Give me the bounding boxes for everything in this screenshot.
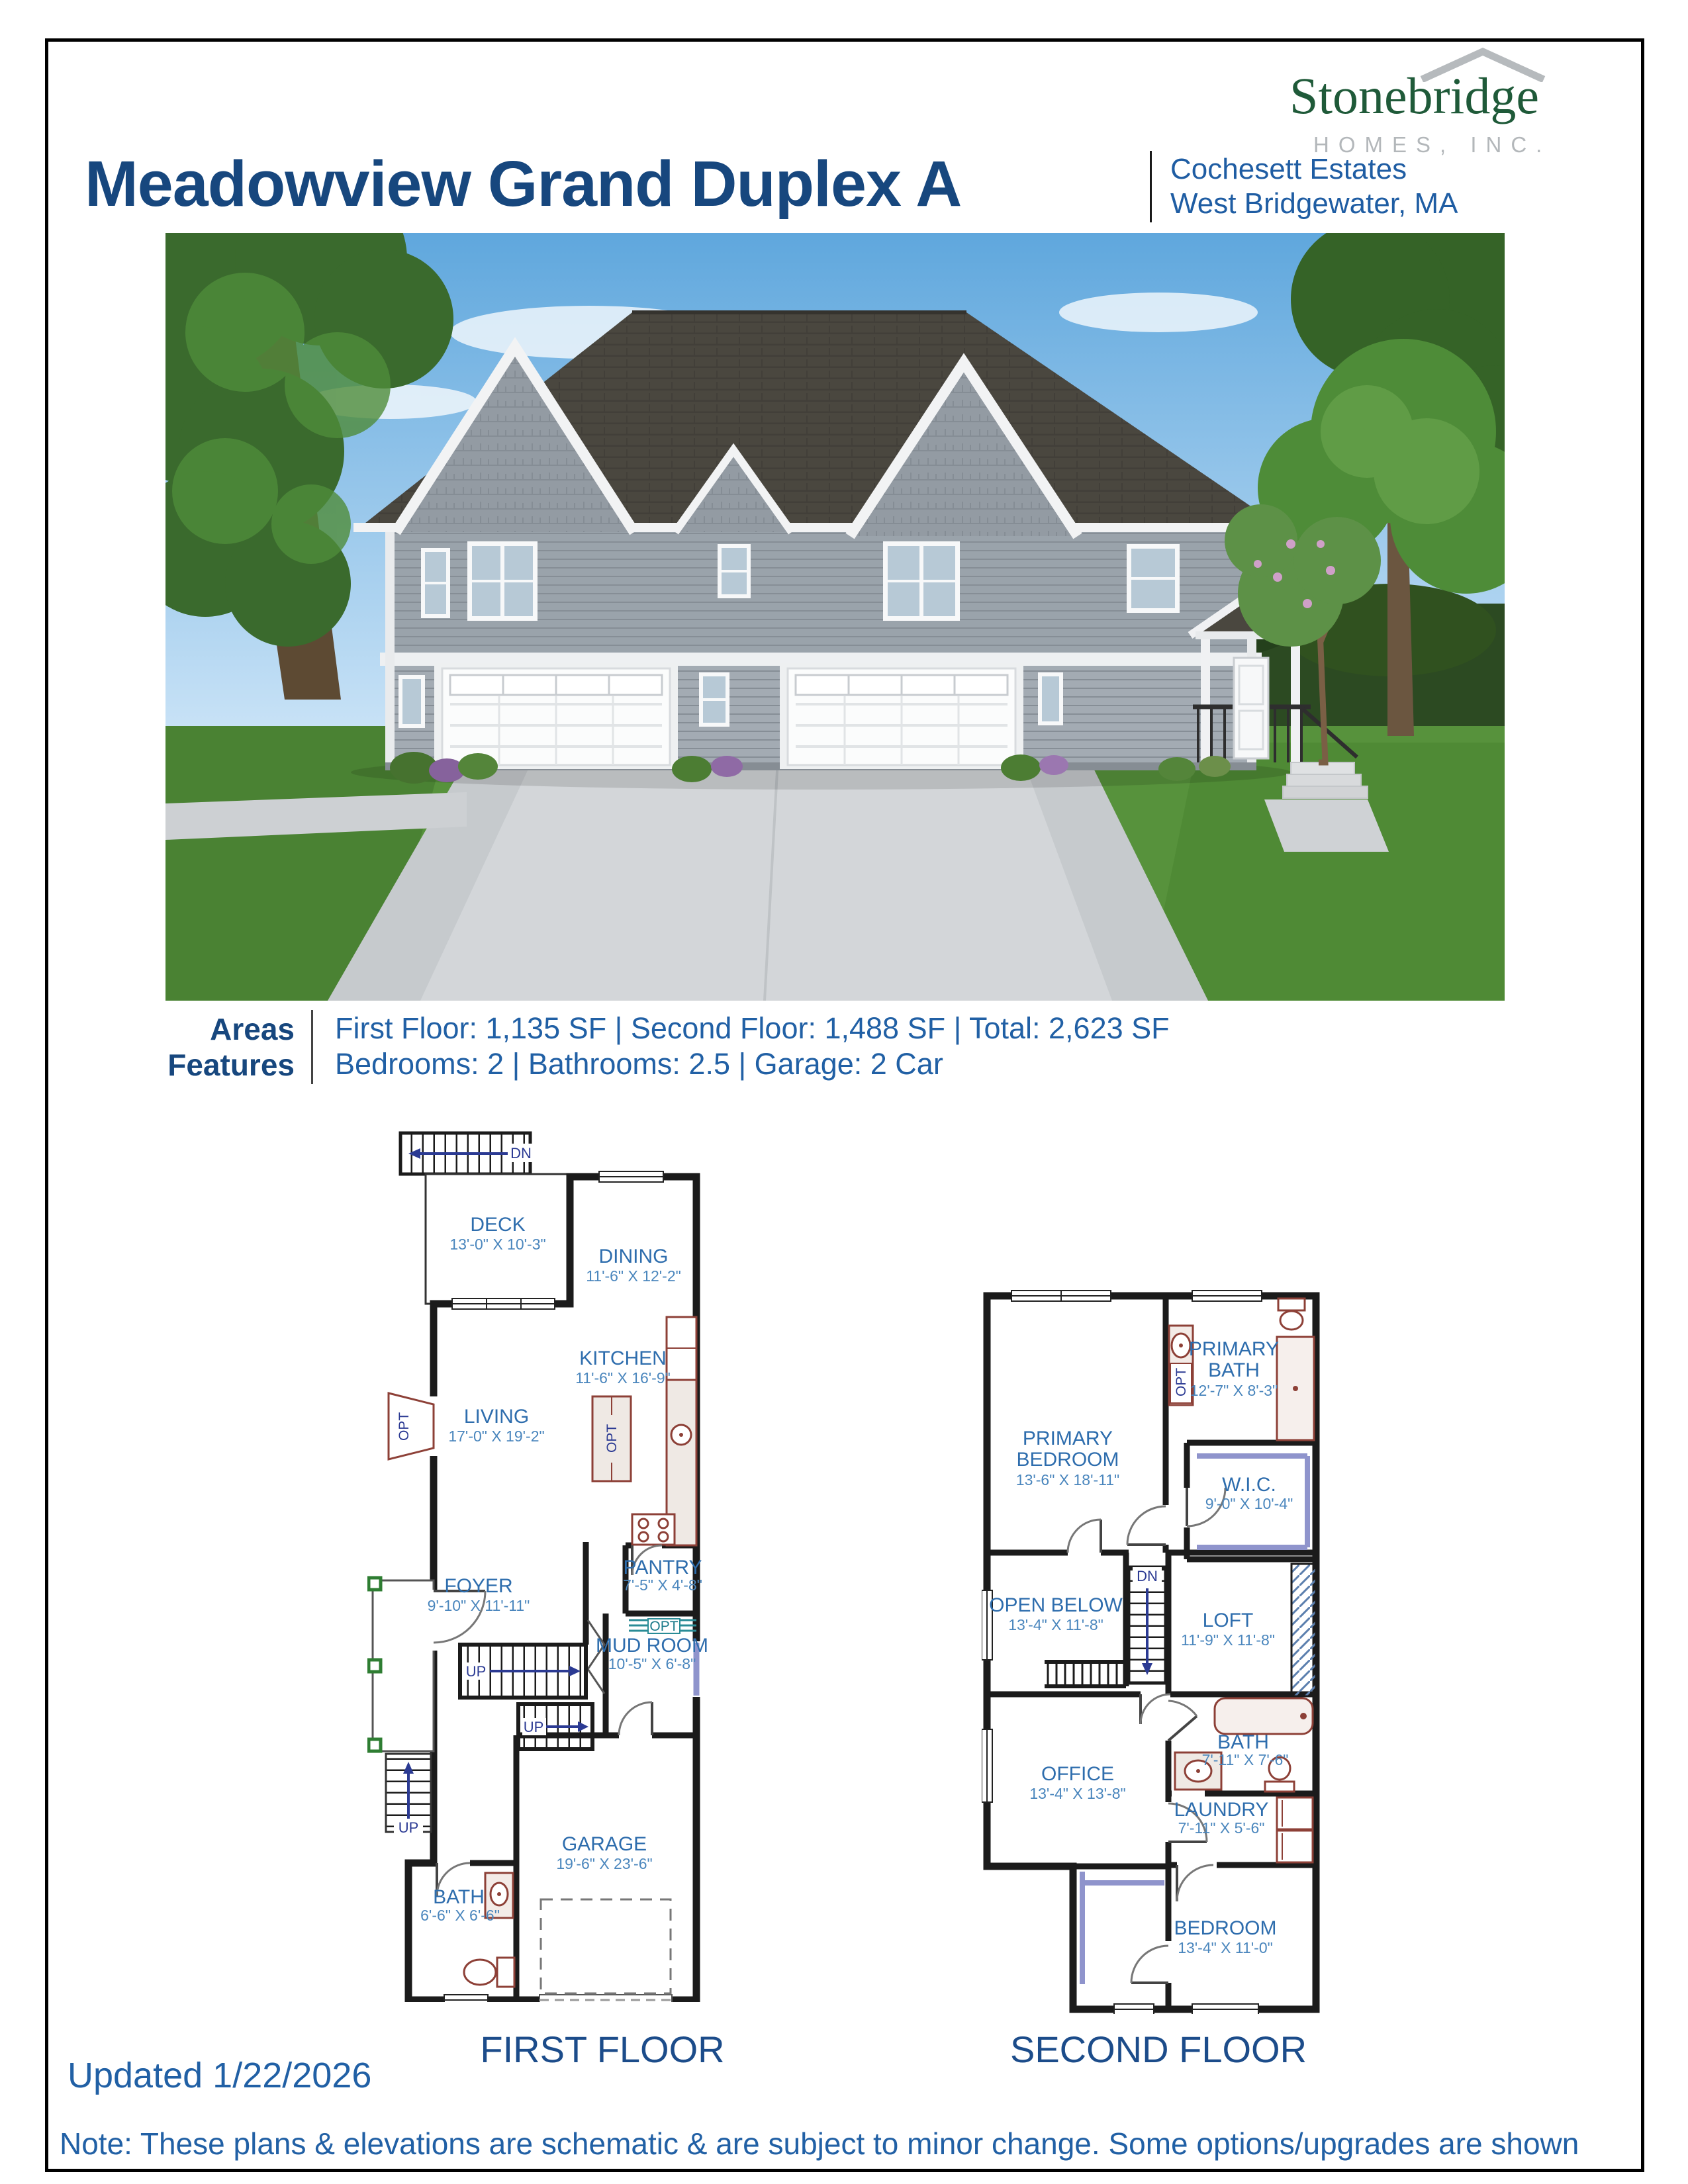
window: [467, 541, 538, 621]
room-name: W.I.C.: [1222, 1474, 1276, 1496]
community-name: Cochesett Estates: [1170, 152, 1407, 187]
first-floor-plan: DN: [367, 1118, 708, 2002]
areas-value: First Floor: 1,135 SF | Second Floor: 1,…: [335, 1011, 1170, 1046]
room-name: KITCHEN: [579, 1347, 667, 1369]
room-name: FOYER: [444, 1575, 512, 1597]
room-name: BATH: [1217, 1731, 1269, 1753]
stairs-down: DN: [1129, 1567, 1166, 1683]
second-floor-caption: SECOND FLOOR: [973, 2028, 1344, 2071]
garage-door-right: [780, 663, 1023, 769]
porch-steps: UP: [386, 1754, 431, 1836]
room-name: GARAGE: [562, 1833, 647, 1855]
opt-label: OPT: [604, 1424, 620, 1453]
room-dims: 6'-6" X 6'-6": [420, 1907, 500, 1924]
porch-post: [1291, 639, 1300, 765]
front-porch: [369, 1578, 434, 1751]
room-dims: 11'-6" X 16'-9": [575, 1369, 671, 1387]
room-dims: 10'-5" X 6'-8": [608, 1655, 696, 1672]
room-dims: 7'-11" X 5'-6": [1178, 1819, 1265, 1837]
main-stairs: UP: [460, 1645, 586, 1698]
room-dims: 17'-0" X 19'-2": [448, 1428, 544, 1445]
room-dims: 19'-6" X 23'-6": [556, 1855, 652, 1872]
bathtub: [1215, 1698, 1313, 1734]
room-name: DECK: [470, 1214, 525, 1236]
updated-date: Updated 1/22/2026: [68, 2055, 371, 2096]
room-name: LIVING: [464, 1406, 529, 1428]
stair-label: UP: [399, 1819, 419, 1836]
room-name: MUD ROOM: [596, 1635, 708, 1657]
logo-roof-icon: [1417, 48, 1549, 82]
room-dims: 7'-5" X 4'-8": [623, 1576, 702, 1594]
room-name: OPEN BELOW: [989, 1594, 1123, 1616]
features-label: Features: [83, 1047, 295, 1083]
room-dims: 13'-4" X 13'-8": [1029, 1785, 1125, 1802]
header-divider: [1150, 151, 1152, 222]
stair-label: DN: [510, 1145, 532, 1161]
window: [718, 544, 751, 598]
opt-label: OPT: [649, 1619, 678, 1634]
room-name: PANTRY: [624, 1557, 702, 1578]
community-town: West Bridgewater, MA: [1170, 187, 1458, 221]
room-dims: 11'-6" X 12'-2": [586, 1267, 681, 1285]
stair-label: UP: [524, 1719, 544, 1735]
laundry-appliances: [1277, 1797, 1313, 1862]
stove: [632, 1514, 675, 1545]
optional-fireplace: OPT: [389, 1393, 438, 1459]
garage-door-left: [434, 663, 678, 769]
opt-label: OPT: [1174, 1368, 1189, 1396]
room-dims: 11'-9" X 11'-8": [1181, 1631, 1275, 1649]
room-name: OFFICE: [1041, 1763, 1114, 1785]
flyer-page: Stonebridge HOMES, INC. Meadowview Grand…: [0, 0, 1688, 2184]
room-dims: 9'-10" X 11'-11": [428, 1597, 530, 1614]
areas-label: Areas: [83, 1011, 295, 1047]
room-dims: 9'-0" X 10'-4": [1205, 1495, 1293, 1512]
room-name: LAUNDRY: [1174, 1799, 1269, 1821]
second-floor-plan: OPT DN: [982, 1289, 1323, 2014]
room-dims: 13'-4" X 11'-0": [1178, 1939, 1273, 1956]
room-dims: 13'-6" X 18'-11": [1016, 1471, 1119, 1488]
plan-title: Meadowview Grand Duplex A: [85, 147, 961, 221]
deck-stairs: DN: [400, 1133, 536, 1174]
stair-label: DN: [1137, 1568, 1158, 1584]
hatched-wall: [1291, 1564, 1316, 1696]
room-name: DINING: [599, 1246, 669, 1267]
room-name: PRIMARY: [1023, 1428, 1113, 1449]
window: [1127, 544, 1180, 613]
first-floor-caption: FIRST FLOOR: [430, 2028, 774, 2071]
room-dims: 13'-0" X 10'-3": [449, 1236, 545, 1253]
room-dims: 12'-7" X 8'-3": [1190, 1382, 1278, 1399]
specs-divider: [311, 1010, 313, 1084]
features-value: Bedrooms: 2 | Bathrooms: 2.5 | Garage: 2…: [335, 1047, 943, 1081]
room-dims: 7'-11" X 7'-6": [1202, 1751, 1289, 1768]
window: [421, 548, 450, 618]
room-name: LOFT: [1203, 1610, 1254, 1631]
stair-label: UP: [466, 1663, 487, 1680]
garage-stairs: UP: [518, 1704, 592, 1749]
kitchen-island: OPT: [592, 1396, 631, 1481]
room-name: PRIMARY: [1189, 1338, 1279, 1360]
room-name: BATH: [433, 1886, 485, 1908]
porch-steps: [1283, 762, 1368, 798]
porch-post: [1201, 639, 1210, 765]
opt-label: OPT: [397, 1412, 412, 1441]
toilet: [1278, 1298, 1305, 1310]
room-name: BEDROOM: [1016, 1449, 1119, 1471]
room-name: BATH: [1208, 1359, 1260, 1381]
room-name: BEDROOM: [1174, 1917, 1276, 1939]
window: [883, 541, 960, 621]
room-dims: 13'-4" X 11'-8": [1008, 1616, 1103, 1633]
house-rendering: [165, 233, 1505, 1001]
disclaimer-note: Note: These plans & elevations are schem…: [60, 2126, 1579, 2161]
